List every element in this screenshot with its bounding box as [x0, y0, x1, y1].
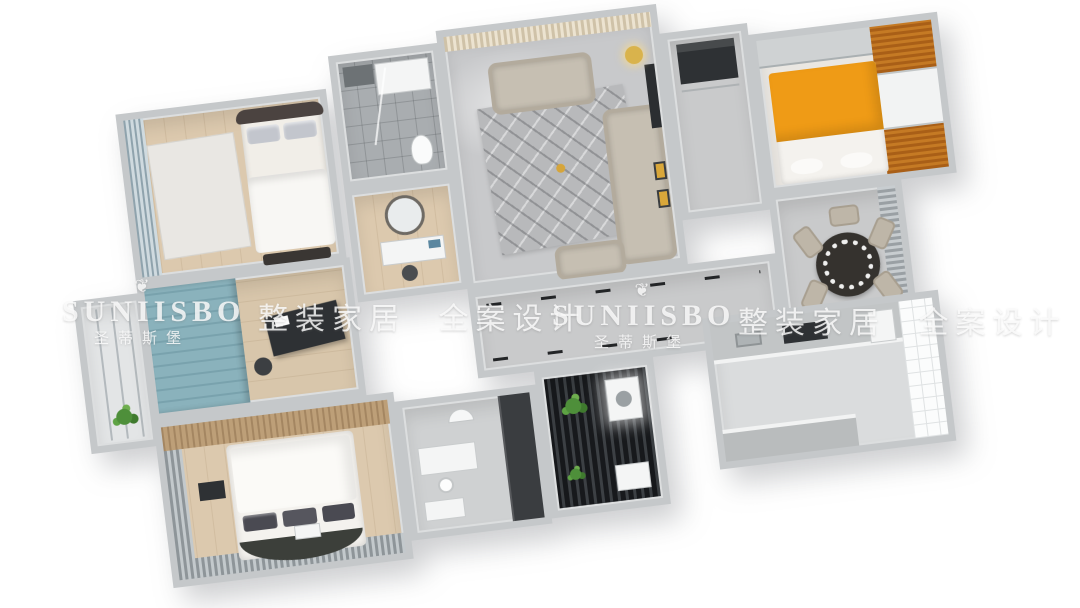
- watermark-brand-chinese: 圣蒂斯堡: [552, 332, 732, 352]
- white-cabinet: [424, 497, 466, 522]
- kitchen-peninsula: [722, 414, 859, 462]
- suniisbo-logo-icon: ❦: [62, 276, 222, 296]
- wardrobe-wood-slat: [869, 20, 936, 75]
- washer-door: [615, 390, 633, 408]
- room-vanity: [344, 176, 469, 303]
- white-desk: [417, 441, 478, 476]
- glass-shelf: [682, 83, 740, 92]
- watermark-slogan-right: 整装家居 全案设计: [738, 298, 1067, 342]
- shoe-cabinet: [676, 38, 738, 85]
- laundry-cabinet: [615, 461, 652, 491]
- watermark-brand-chinese: 圣蒂斯堡: [62, 328, 222, 348]
- room-kids-bedroom: [748, 12, 956, 196]
- floorplan-render: ❦ SUNIISBO 圣蒂斯堡 整装家居 全案设计 ❦ SUNIISBO 圣蒂斯…: [0, 0, 1080, 608]
- stool: [401, 264, 419, 282]
- desk-chair: [253, 356, 273, 376]
- gold-art-frame: [653, 161, 667, 180]
- nightstand: [198, 480, 226, 501]
- room-home-office: [394, 384, 552, 540]
- round-mirror: [383, 193, 428, 238]
- watermark-brand-name: SUNIISBO: [62, 296, 222, 328]
- room-shower-bathroom: [328, 43, 455, 190]
- dark-wardrobe: [498, 392, 545, 521]
- washing-machine: [604, 376, 643, 422]
- room-living: [436, 4, 688, 291]
- blue-towel: [428, 239, 441, 248]
- watermark-brand-center: ❦ SUNIISBO 圣蒂斯堡: [552, 280, 732, 352]
- dining-chair: [828, 204, 860, 228]
- bed-duvet: [247, 168, 336, 253]
- balcony-plant: [115, 408, 133, 426]
- watermark-brand-name: SUNIISBO: [552, 300, 732, 332]
- kids-bed: [768, 61, 889, 185]
- arched-mirror: [447, 407, 474, 423]
- master-bed: [226, 430, 367, 561]
- table-plates: [820, 237, 876, 293]
- double-bed: [240, 107, 336, 254]
- laundry-plant: [564, 397, 582, 415]
- suniisbo-logo-icon: ❦: [552, 280, 732, 300]
- laundry-plant: [569, 468, 581, 480]
- room-secondary-bedroom: [115, 89, 346, 286]
- wardrobe-white-panel: [875, 67, 943, 130]
- gold-art-frame: [657, 189, 671, 208]
- living-curtain: [443, 12, 651, 52]
- watermark-brand-left: ❦ SUNIISBO 圣蒂斯堡: [62, 276, 222, 348]
- floor-lamp: [624, 45, 644, 65]
- white-chair: [437, 476, 455, 494]
- kids-bed-orange-duvet: [768, 61, 884, 143]
- wardrobe-wood-slat: [882, 122, 949, 174]
- bath-niche: [342, 64, 374, 88]
- room-laundry-balcony: [534, 357, 671, 519]
- toilet: [409, 133, 434, 165]
- white-rug: [146, 132, 251, 260]
- watermark-slogan-left: 整装家居 全案设计: [258, 294, 587, 338]
- room-master-bedroom: [153, 392, 414, 588]
- master-curtain-left: [164, 449, 195, 560]
